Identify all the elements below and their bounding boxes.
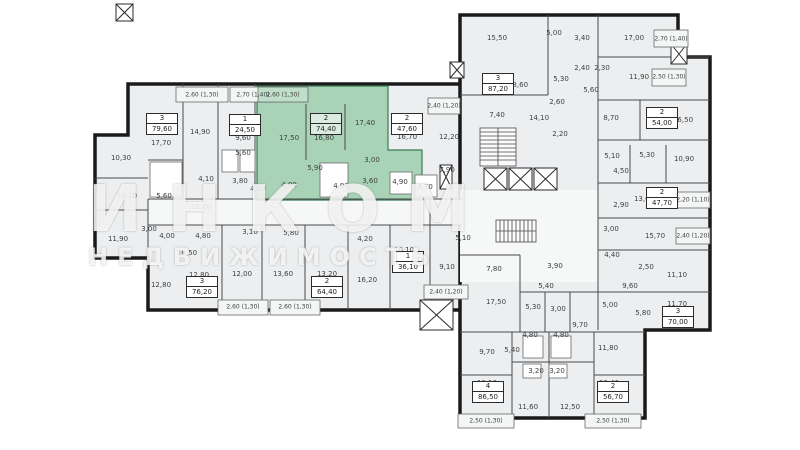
staircase-icon (480, 128, 516, 166)
elevator-icon (484, 168, 557, 190)
floor-plan-page: 17,7014,9010,3013,105,609,605,603,804,10… (0, 0, 800, 450)
floorplan-drawing (0, 0, 800, 450)
corridor-left (148, 200, 462, 225)
staircase-icon (496, 220, 536, 242)
